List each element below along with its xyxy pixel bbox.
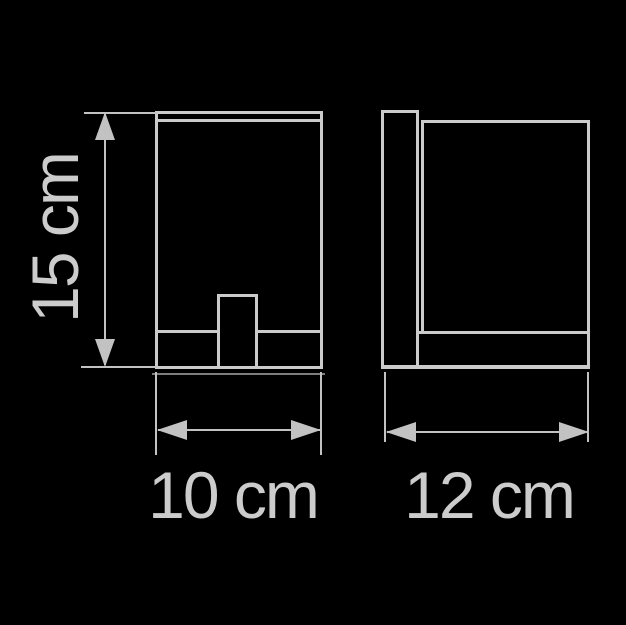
front-view-base-line-left (158, 330, 220, 333)
depth-dim-arrowhead-left (386, 422, 416, 442)
width-dim-extension-right (320, 372, 322, 455)
height-dim-arrowhead-down (95, 339, 115, 367)
side-view-wall-plate (381, 110, 419, 369)
side-view-body-top-line (421, 120, 590, 123)
front-view-top-rim-line (158, 119, 320, 122)
width-dim-label: 10 cm (133, 458, 333, 532)
height-dim-line (104, 114, 106, 365)
dimension-diagram: 15 cm 10 cm 12 cm (0, 0, 626, 625)
side-view-bottom-line (381, 365, 590, 369)
width-dim-arrowhead-right (291, 420, 321, 440)
side-view-base-line (419, 331, 590, 334)
width-dim-arrowhead-left (157, 420, 187, 440)
front-view-knob (217, 294, 258, 366)
height-dim-extension-bottom (81, 366, 157, 368)
side-view-body-left-line (421, 120, 424, 334)
depth-dim-line (387, 431, 587, 433)
depth-dim-arrowhead-right (559, 422, 589, 442)
front-view-base-line-right (255, 330, 320, 333)
height-dim-arrowhead-up (95, 112, 115, 140)
width-dim-extension-left (155, 372, 157, 455)
front-view-bottom-edge-line (152, 373, 325, 375)
height-dim-label: 15 cm (18, 138, 92, 338)
depth-dim-label: 12 cm (389, 458, 589, 532)
